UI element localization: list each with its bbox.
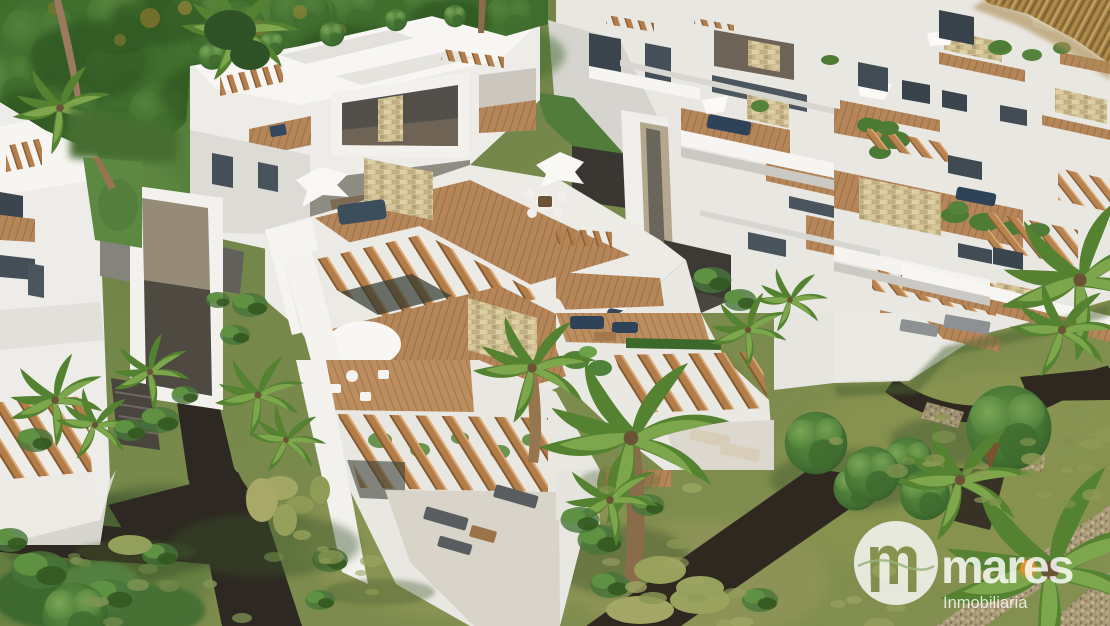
svg-text:Inmobiliaria: Inmobiliaria — [943, 594, 1028, 612]
svg-text:mares: mares — [941, 541, 1073, 594]
